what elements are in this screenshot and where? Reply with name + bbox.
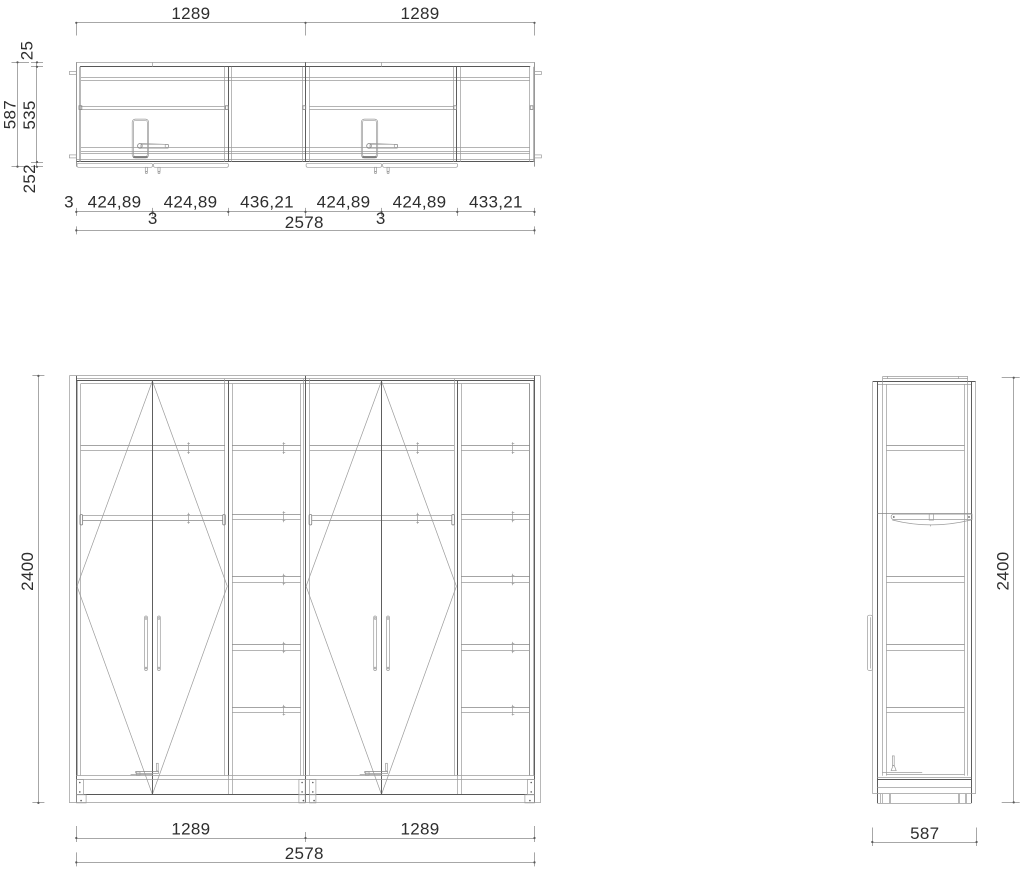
svg-text:1289: 1289 — [400, 820, 439, 839]
svg-text:3: 3 — [148, 209, 158, 228]
svg-text:1289: 1289 — [171, 820, 210, 839]
svg-text:424,89: 424,89 — [88, 193, 142, 212]
svg-text:252: 252 — [20, 164, 39, 193]
svg-text:2400: 2400 — [18, 552, 37, 591]
svg-text:436,21: 436,21 — [240, 193, 294, 212]
svg-text:1289: 1289 — [400, 4, 439, 23]
svg-text:424,89: 424,89 — [164, 193, 218, 212]
svg-text:433,21: 433,21 — [469, 193, 523, 212]
svg-text:2400: 2400 — [994, 551, 1013, 590]
svg-text:3: 3 — [64, 193, 74, 212]
svg-text:2578: 2578 — [285, 844, 324, 863]
svg-text:1289: 1289 — [171, 4, 210, 23]
svg-text:424,89: 424,89 — [393, 193, 447, 212]
svg-text:2578: 2578 — [285, 213, 324, 232]
svg-text:3: 3 — [376, 209, 386, 228]
svg-text:587: 587 — [1, 100, 20, 129]
svg-text:25: 25 — [18, 41, 37, 61]
svg-text:535: 535 — [20, 100, 39, 129]
svg-text:587: 587 — [910, 824, 939, 843]
svg-text:424,89: 424,89 — [317, 193, 371, 212]
